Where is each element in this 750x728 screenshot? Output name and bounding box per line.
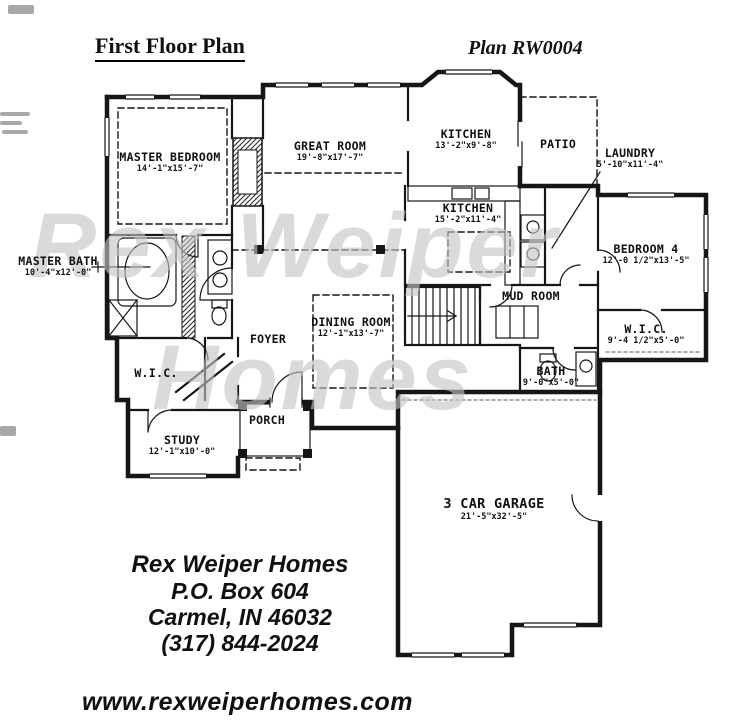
watermark-line2: Homes xyxy=(152,332,474,424)
room-label-wic-right: W.I.C.9'-4 1/2"x5'-0" xyxy=(608,324,685,346)
room-label-porch: PORCH xyxy=(249,415,285,427)
address-line2: Carmel, IN 46032 xyxy=(55,604,425,630)
address-line1: P.O. Box 604 xyxy=(55,578,425,604)
room-label-mud-room: MUD ROOM xyxy=(502,291,560,303)
scan-artifact xyxy=(2,130,28,134)
room-label-wic-left: W.I.C. xyxy=(134,368,177,380)
room-label-dining-room: DINING ROOM12'-1"x13'-7" xyxy=(311,317,390,339)
room-label-foyer: FOYER xyxy=(250,334,286,346)
scan-artifact xyxy=(8,5,34,14)
room-label-study: STUDY12'-1"x10'-0" xyxy=(149,435,216,457)
plan-number: Plan RW0004 xyxy=(468,37,583,60)
room-label-kitchen-nook: KITCHEN13'-2"x9'-8" xyxy=(435,129,496,151)
room-label-kitchen: KITCHEN15'-2"x11'-4" xyxy=(435,203,502,225)
room-label-bath: BATH9'-0"x5'-0" xyxy=(523,366,579,388)
page-title: First Floor Plan xyxy=(95,33,245,62)
room-label-master-bedroom: MASTER BEDROOM14'-1"x15'-7" xyxy=(119,152,220,174)
scanned-floor-plan-page: Rex Weiper Homes First Floor Plan Plan R… xyxy=(0,0,750,728)
scan-artifact xyxy=(0,112,30,116)
room-label-garage: 3 CAR GARAGE21'-5"x32'-5" xyxy=(443,498,544,522)
footer-address: Rex Weiper Homes P.O. Box 604 Carmel, IN… xyxy=(55,552,425,656)
room-label-patio: PATIO xyxy=(540,139,576,151)
scan-artifact xyxy=(0,121,22,125)
phone-number: (317) 844-2024 xyxy=(55,630,425,656)
company-name: Rex Weiper Homes xyxy=(55,552,425,578)
scan-artifact xyxy=(0,426,16,436)
room-label-bedroom-4: BEDROOM 412'-0 1/2"x13'-5" xyxy=(603,244,690,266)
website-url: www.rexweiperhomes.com xyxy=(82,688,413,717)
room-label-great-room: GREAT ROOM19'-8"x17'-7" xyxy=(294,141,366,163)
room-label-master-bath: MASTER BATH10'-4"x12'-0" xyxy=(18,256,97,278)
room-label-laundry: LAUNDRY5'-10"x11'-4" xyxy=(597,148,664,170)
